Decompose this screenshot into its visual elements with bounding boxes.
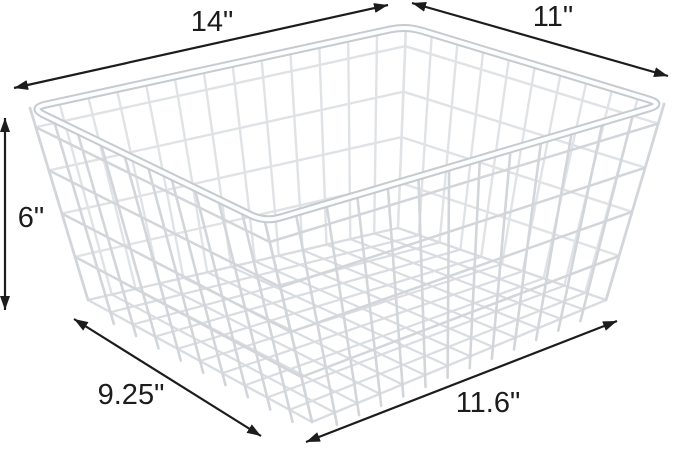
dimension-label-bottom-width: 11.6" xyxy=(456,387,521,419)
diagram-canvas: 14" 11" 6" 9.25" 11.6" xyxy=(0,0,679,449)
dimension-label-height: 6" xyxy=(18,202,44,234)
dimension-top-width: 14" xyxy=(14,5,388,88)
dimension-bottom-width: 11.6" xyxy=(306,321,617,442)
dimension-label-top-width: 14" xyxy=(191,6,234,38)
dimension-bottom-depth: 9.25" xyxy=(74,319,261,436)
dimension-label-top-depth: 11" xyxy=(533,1,573,33)
dimension-arrow-bottom-depth xyxy=(74,319,261,436)
dimension-label-bottom-depth: 9.25" xyxy=(98,379,165,411)
dimension-height: 6" xyxy=(5,118,44,310)
dimension-annotations: 14" 11" 6" 9.25" 11.6" xyxy=(0,0,679,449)
dimension-arrow-bottom-width xyxy=(306,321,617,442)
dimension-top-depth: 11" xyxy=(412,1,668,76)
